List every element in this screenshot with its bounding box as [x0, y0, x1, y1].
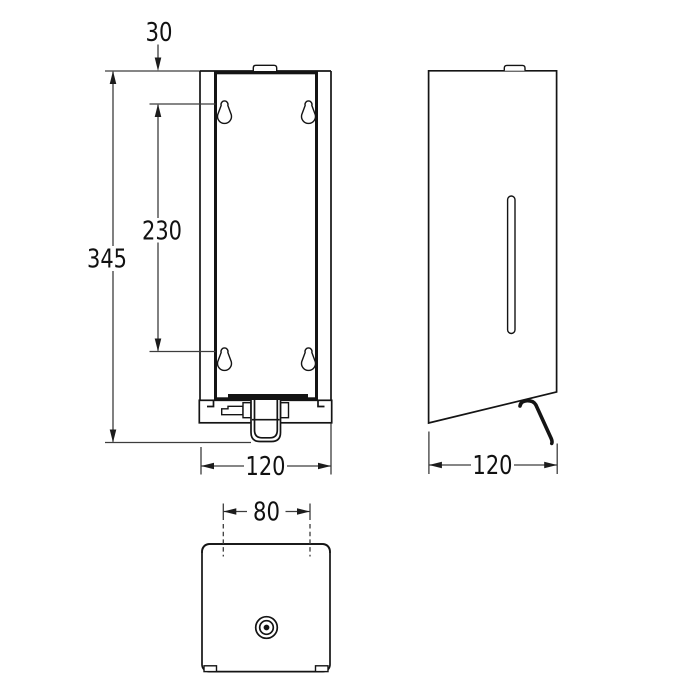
gasket-bar: [228, 394, 308, 401]
sheet-background: [0, 0, 700, 700]
drawing-sheet: 30 230 345 120: [0, 0, 700, 700]
dim-label-230: 230: [142, 217, 182, 247]
nozzle-center-dot: [264, 625, 270, 631]
dim-label-front-120: 120: [246, 452, 286, 482]
bottom-view: [202, 544, 330, 672]
sight-window-slot: [508, 196, 515, 334]
technical-drawing: 30 230 345 120: [0, 0, 700, 700]
bottom-body: [202, 544, 330, 672]
dim-label-80: 80: [253, 498, 280, 528]
corner-tab-right: [316, 666, 329, 672]
dim-label-side-120: 120: [473, 451, 513, 481]
dim-label-345: 345: [87, 245, 127, 275]
side-view: [429, 65, 557, 443]
corner-tab-left: [204, 666, 217, 672]
lid-tab-side: [504, 65, 525, 70]
lid-tab-front: [253, 65, 276, 71]
side-outline: [429, 71, 557, 423]
nozzle-outlet: [256, 617, 278, 639]
pump-flange-left: [243, 403, 251, 418]
dim-label-30: 30: [146, 18, 173, 48]
pump-flange-right: [281, 403, 289, 418]
